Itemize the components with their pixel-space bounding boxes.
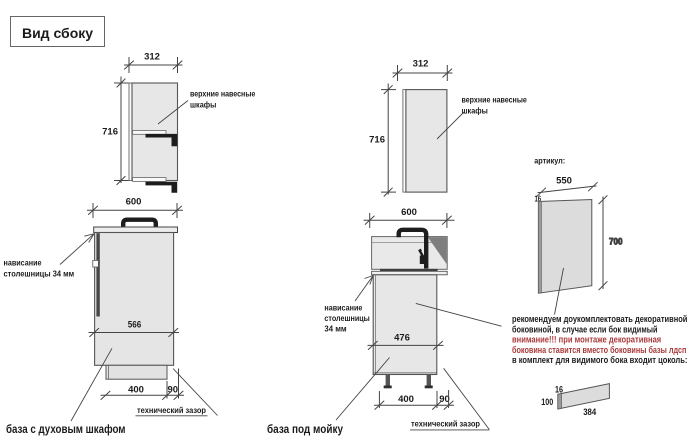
svg-text:312: 312: [413, 59, 429, 70]
svg-text:артикул:: артикул:: [534, 156, 565, 166]
svg-text:внимание!!! при монтаже декора: внимание!!! при монтаже декоративная: [512, 335, 661, 345]
svg-text:в комплект для видимого бока в: в комплект для видимого бока входит цоко…: [512, 355, 687, 365]
svg-text:400: 400: [128, 384, 144, 395]
svg-text:шкафы: шкафы: [190, 100, 216, 110]
svg-text:600: 600: [126, 197, 142, 208]
svg-text:476: 476: [394, 333, 410, 344]
svg-text:16: 16: [555, 385, 563, 395]
svg-text:рекомендуем доукомплектовать д: рекомендуем доукомплектовать декоративно…: [512, 314, 687, 324]
svg-text:Вид сбоку: Вид сбоку: [22, 25, 93, 41]
svg-text:700: 700: [609, 237, 623, 248]
svg-text:550: 550: [556, 176, 572, 187]
svg-text:нависание: нависание: [324, 303, 362, 313]
svg-text:566: 566: [128, 320, 142, 331]
svg-text:384: 384: [583, 407, 596, 417]
svg-text:100: 100: [541, 397, 553, 407]
svg-text:столешницы: столешницы: [324, 313, 369, 323]
svg-text:боковина ставится вместо боков: боковина ставится вместо боковины базы л…: [512, 345, 686, 355]
svg-text:база под мойку: база под мойку: [267, 424, 344, 436]
svg-text:600: 600: [401, 207, 417, 218]
svg-text:34 мм: 34 мм: [324, 323, 346, 333]
svg-text:боковиной, в случае если бок в: боковиной, в случае если бок видимый: [512, 324, 658, 334]
svg-text:верхние навесные: верхние навесные: [190, 89, 255, 99]
svg-text:нависание: нависание: [4, 258, 42, 268]
svg-text:верхние навесные: верхние навесные: [462, 95, 527, 105]
svg-text:столешницы 34 мм: столешницы 34 мм: [4, 269, 75, 279]
svg-text:400: 400: [398, 394, 414, 405]
svg-text:технический зазор: технический зазор: [411, 419, 480, 429]
svg-text:шкафы: шкафы: [462, 106, 488, 116]
svg-text:312: 312: [144, 52, 160, 63]
svg-text:716: 716: [102, 127, 118, 138]
svg-text:716: 716: [369, 135, 385, 146]
svg-text:технический зазор: технический зазор: [137, 405, 206, 415]
svg-text:база с духовым шкафом: база с духовым шкафом: [6, 424, 126, 436]
